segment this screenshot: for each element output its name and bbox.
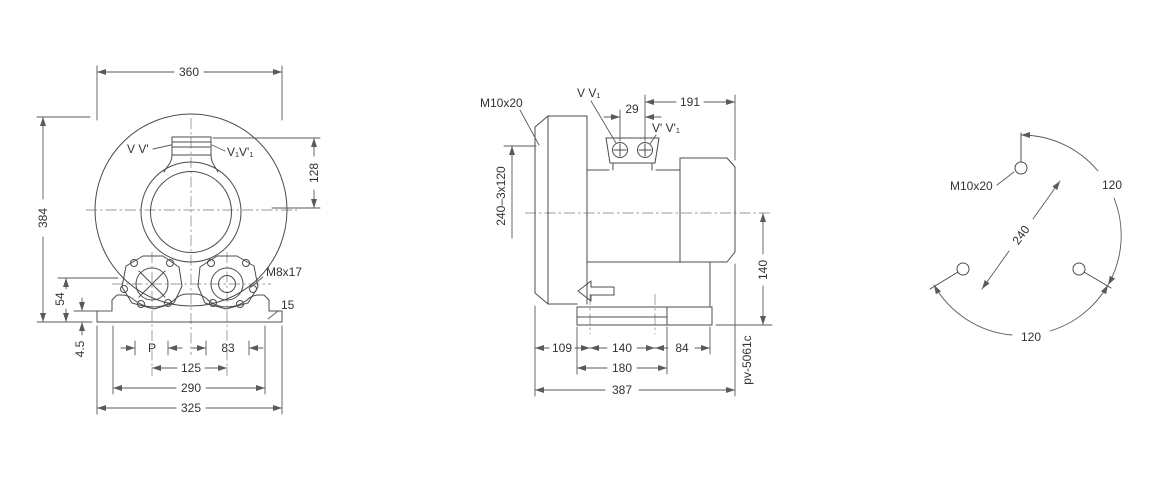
dim-54: 54 — [53, 292, 67, 306]
bolt-hole-top — [1015, 162, 1027, 174]
side-outline — [535, 116, 735, 325]
motor-fan-cover — [680, 158, 735, 262]
dim-387: 387 — [612, 383, 632, 397]
front-view: 360 384 128 54 4.5 P — [36, 65, 321, 415]
label-m10x20-side: M10x20 — [480, 96, 523, 110]
side-dimensions: M10x20 240–3x120 V V₁ 29 191 V' V'₁ — [480, 86, 772, 397]
bolt-circle-view: 120 120 240 M10x20 — [930, 133, 1122, 344]
dim-180: 180 — [612, 361, 632, 375]
engineering-drawing-svg: 360 384 128 54 4.5 P — [0, 0, 1160, 480]
label-port-vv: V V' — [127, 142, 149, 156]
dim-120-bottom: 120 — [1021, 330, 1041, 344]
dim-29: 29 — [625, 102, 639, 116]
flow-direction-arrow — [578, 281, 614, 301]
label-vpvp1: V' V'₁ — [652, 121, 680, 135]
dim-140-bottom: 140 — [612, 341, 632, 355]
port-neck-left — [164, 155, 172, 172]
dim-325: 325 — [181, 401, 201, 415]
dim-109: 109 — [552, 341, 572, 355]
dim-4-5: 4.5 — [73, 340, 87, 357]
dim-191: 191 — [680, 95, 700, 109]
foot-profile — [97, 294, 282, 322]
dim-140-right: 140 — [756, 260, 770, 280]
dim-240: 240 — [1009, 223, 1032, 248]
label-port-v1v1: V₁V'₁ — [227, 145, 253, 159]
bolt-hole-left — [957, 263, 969, 275]
label-vv1: V V₁ — [577, 86, 600, 100]
bolt-hole-right — [1073, 263, 1085, 275]
dim-290: 290 — [181, 381, 201, 395]
port-neck-right — [211, 155, 218, 172]
label-m10x20-bolt: M10x20 — [950, 179, 993, 193]
dim-128: 128 — [307, 163, 321, 183]
front-dimensions: 360 384 128 54 4.5 P — [36, 65, 321, 415]
dim-360: 360 — [179, 65, 199, 79]
side-view: M10x20 240–3x120 V V₁ 29 191 V' V'₁ — [480, 86, 772, 397]
dim-240-3x120: 240–3x120 — [494, 166, 508, 226]
technical-drawing-page: 360 384 128 54 4.5 P — [0, 0, 1160, 480]
dim-15: 15 — [281, 298, 295, 312]
bolt-circle-outline — [930, 133, 1111, 289]
dim-384: 384 — [36, 208, 50, 228]
housing-flange-slab — [535, 116, 548, 304]
dim-84: 84 — [675, 341, 689, 355]
drawing-number: pv-5061c — [740, 335, 754, 384]
top-port-flange — [172, 137, 211, 155]
dim-p: P — [148, 341, 156, 355]
dim-125: 125 — [181, 361, 201, 375]
label-m8x17: M8x17 — [266, 265, 302, 279]
bolt-circle-dimensions: 120 120 240 M10x20 — [934, 135, 1122, 344]
dim-120-right: 120 — [1102, 178, 1122, 192]
mounting-foot — [577, 307, 712, 325]
dim-83: 83 — [221, 341, 235, 355]
